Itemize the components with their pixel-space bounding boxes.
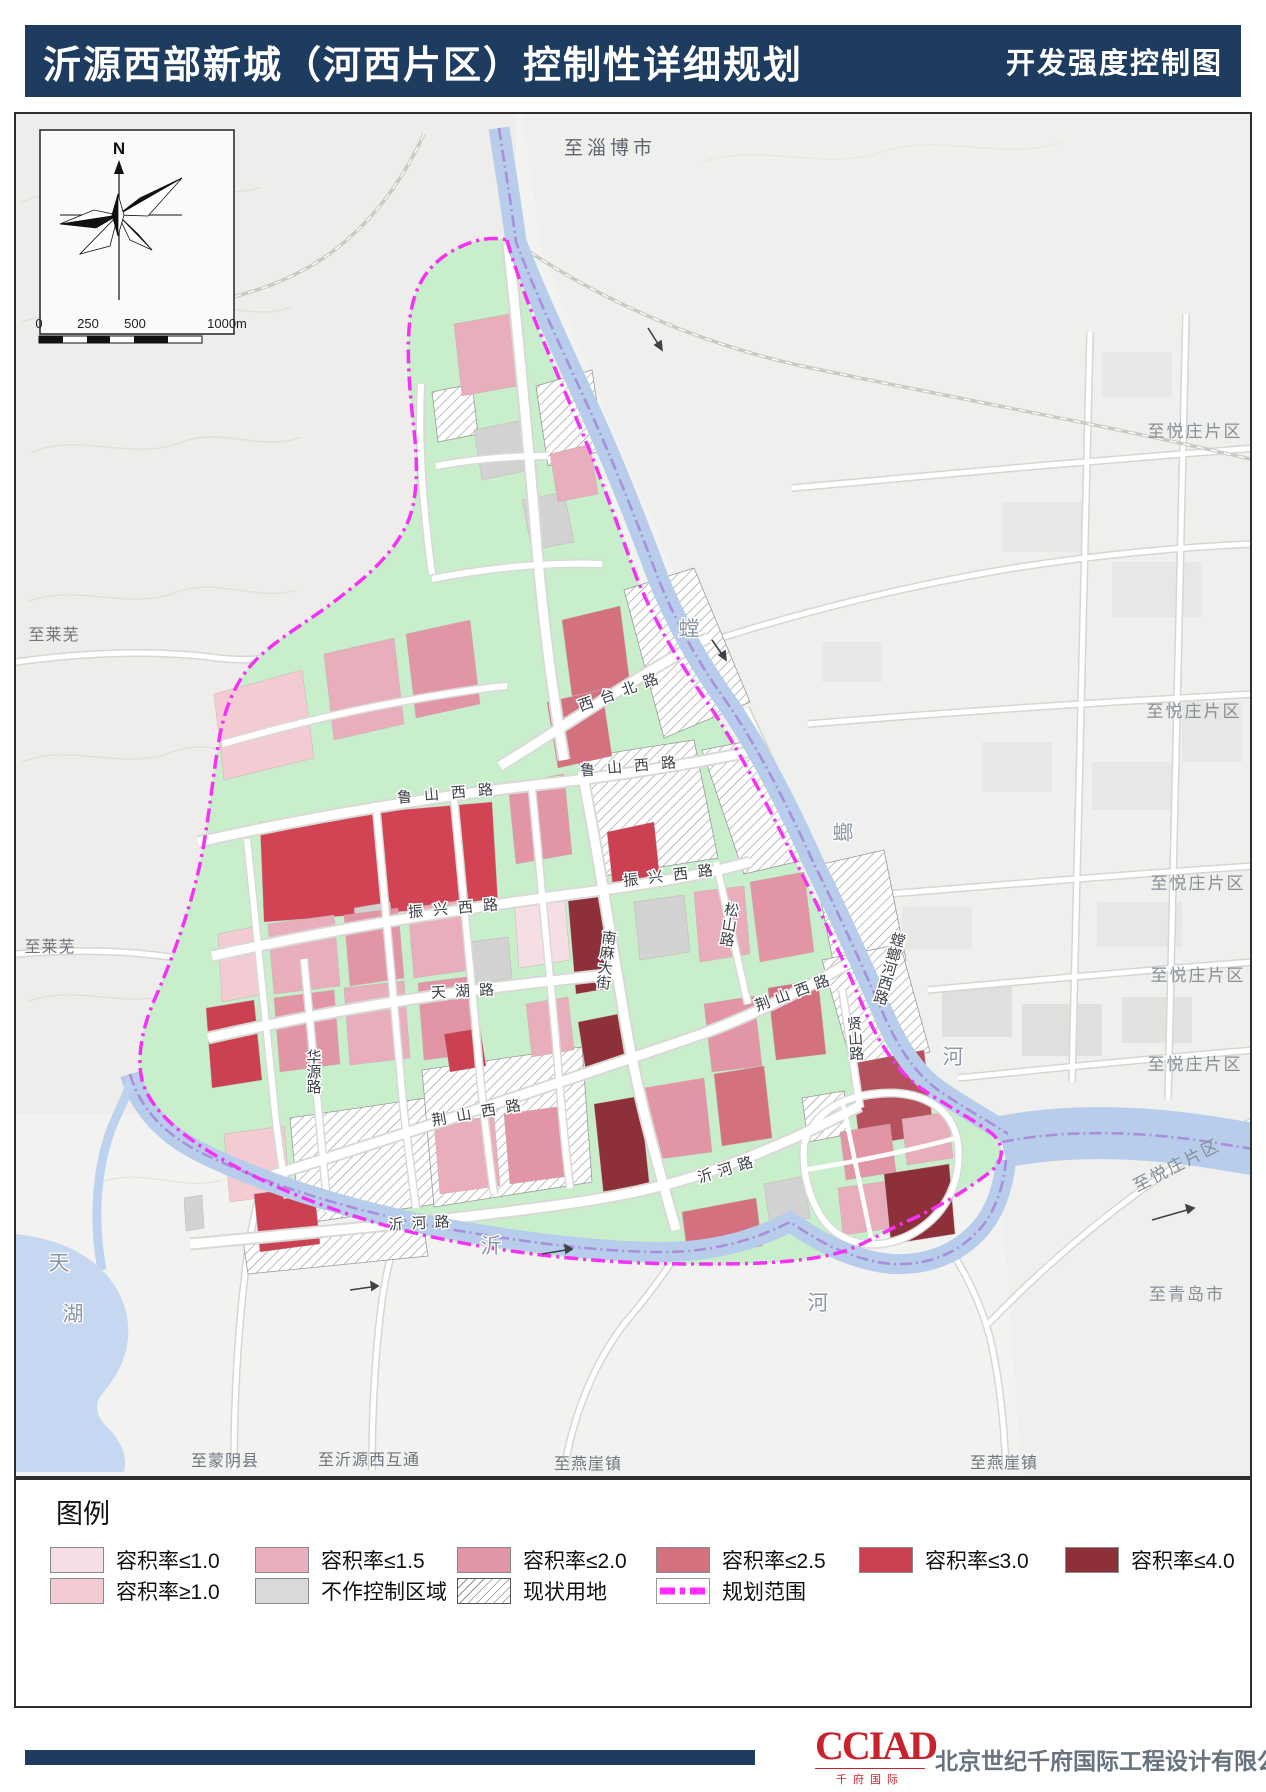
river-label-char: 河	[808, 1292, 829, 1315]
legend-panel: 图例 容积率≤1.0 容积率≤1.5 容积率≤2.0 容积率≤2.5 容积率≤3…	[14, 1478, 1252, 1708]
context-label: 至悦庄片区	[1148, 422, 1243, 441]
legend-swatch	[255, 1578, 309, 1604]
map-type-title: 开发强度控制图	[1006, 40, 1223, 82]
legend-item: 容积率≤2.0	[457, 1545, 627, 1575]
context-label: 至悦庄片区	[1147, 702, 1242, 721]
planning-map-page: 沂源西部新城（河西片区）控制性详细规划 开发强度控制图	[0, 0, 1266, 1792]
scale-tick: 0	[35, 316, 42, 331]
legend-item: 不作控制区域	[255, 1576, 447, 1606]
context-label: 至青岛市	[1149, 1285, 1225, 1304]
scale-tick: 250	[77, 316, 99, 331]
legend-swatch	[457, 1547, 511, 1573]
lake-label-char: 天	[49, 1252, 70, 1275]
context-label: 至悦庄片区	[1151, 966, 1246, 985]
lake-label-char: 湖	[63, 1303, 84, 1326]
legend-item: 容积率≤1.5	[255, 1545, 425, 1575]
legend-label: 容积率≤4.0	[1131, 1545, 1235, 1575]
legend-swatch	[50, 1578, 104, 1604]
context-label: 至蒙阴县	[191, 1452, 259, 1470]
street-label: 华源路	[305, 1049, 322, 1094]
street-label: 沂河路	[388, 1213, 458, 1234]
legend-label: 容积率≤2.0	[523, 1545, 627, 1575]
legend-label: 容积率≥1.0	[116, 1576, 220, 1606]
compass-scale-inset: N 0 250 500 1000m	[35, 130, 246, 343]
context-label: 至燕崖镇	[554, 1455, 622, 1473]
legend-swatch	[859, 1547, 913, 1573]
company-logo-subtext: 千府国际	[815, 1768, 925, 1787]
river-label-char: 河	[943, 1046, 964, 1069]
context-label: 至沂源西互通	[318, 1451, 420, 1469]
map-canvas: 螳 螂 河 沂 河 天 湖 西台北路 鲁山西路 鲁山西路 振兴西路 振兴西路 天…	[16, 114, 1252, 1478]
legend-item: 容积率≥1.0	[50, 1576, 220, 1606]
legend-swatch-hatch	[457, 1578, 511, 1604]
legend-label: 规划范围	[722, 1576, 806, 1606]
river-label-char: 螂	[833, 822, 854, 845]
river-label-char: 沂	[481, 1235, 502, 1258]
scale-tick: 1000m	[207, 316, 247, 331]
legend-item: 规划范围	[656, 1576, 806, 1606]
legend-item: 现状用地	[457, 1576, 607, 1606]
legend-swatch	[255, 1547, 309, 1573]
boundary-line-sample	[660, 1588, 706, 1595]
legend-swatch	[50, 1547, 104, 1573]
north-label: N	[113, 139, 125, 158]
context-label: 至莱芜	[24, 938, 75, 956]
company-logo: CCIAD 千府国际	[815, 1726, 925, 1787]
legend-title: 图例	[56, 1492, 110, 1531]
legend-label: 容积率≤1.0	[116, 1545, 220, 1575]
legend-label: 容积率≤1.5	[321, 1545, 425, 1575]
legend-swatch	[656, 1547, 710, 1573]
scale-tick: 500	[124, 316, 146, 331]
legend-label: 容积率≤3.0	[925, 1545, 1029, 1575]
context-label: 至燕崖镇	[970, 1454, 1038, 1472]
legend-label: 现状用地	[523, 1576, 607, 1606]
page-title: 沂源西部新城（河西片区）控制性详细规划	[43, 34, 803, 89]
legend-item: 容积率≤3.0	[859, 1545, 1029, 1575]
street-label: 贤山路	[845, 1015, 865, 1061]
footer-accent-bar	[25, 1750, 755, 1765]
context-label: 至悦庄片区	[1148, 1055, 1243, 1074]
legend-swatch	[1065, 1547, 1119, 1573]
legend-item: 容积率≤4.0	[1065, 1545, 1235, 1575]
legend-label: 不作控制区域	[321, 1576, 447, 1606]
legend-item: 容积率≤1.0	[50, 1545, 220, 1575]
company-name: 北京世纪千府国际工程设计有限公司	[935, 1742, 1266, 1776]
legend-label: 容积率≤2.5	[722, 1545, 826, 1575]
legend-swatch-boundary	[656, 1578, 710, 1604]
company-logo-text: CCIAD	[815, 1726, 925, 1766]
context-label: 至淄博市	[564, 137, 656, 159]
legend-item: 容积率≤2.5	[656, 1545, 826, 1575]
river-label-char: 螳	[679, 618, 700, 641]
context-label: 至莱芜	[28, 626, 79, 644]
context-label: 至悦庄片区	[1151, 874, 1246, 893]
title-bar: 沂源西部新城（河西片区）控制性详细规划 开发强度控制图	[25, 25, 1241, 97]
map-frame: 螳 螂 河 沂 河 天 湖 西台北路 鲁山西路 鲁山西路 振兴西路 振兴西路 天…	[14, 112, 1252, 1478]
